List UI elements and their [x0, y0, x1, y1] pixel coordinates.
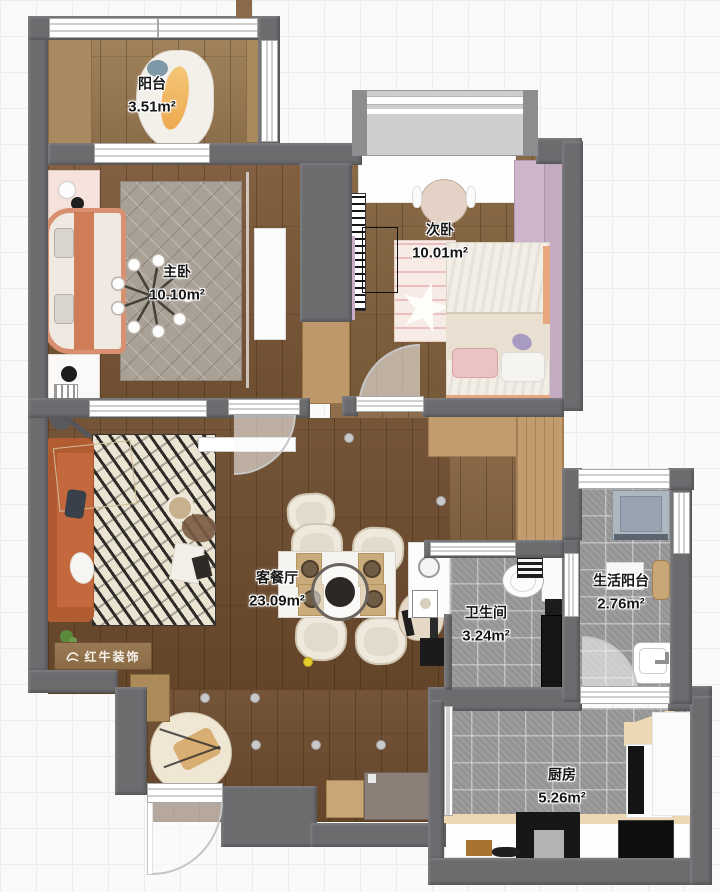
- wall: [422, 398, 564, 417]
- cutting-board: [466, 840, 492, 856]
- downlight: [436, 496, 446, 506]
- fridge[interactable]: [618, 820, 674, 860]
- room-label-balcony: 阳台 3.51m²: [128, 74, 176, 119]
- wall: [115, 687, 147, 795]
- soap-dish: [420, 598, 431, 609]
- bathroom-sliding-door[interactable]: [430, 542, 516, 556]
- wall: [690, 696, 712, 885]
- plate: [363, 560, 381, 578]
- master-door-frame[interactable]: [228, 399, 300, 415]
- room-label-bathroom: 卫生间 3.24m²: [462, 603, 510, 648]
- storage-cabinet[interactable]: [516, 411, 564, 543]
- washer-panel: [614, 534, 668, 540]
- wall: [221, 786, 317, 847]
- wall: [428, 700, 444, 860]
- room-area: 10.01m²: [412, 241, 468, 264]
- smoke-detector: [303, 657, 313, 667]
- wall: [562, 141, 583, 411]
- room-name: 厨房: [538, 765, 586, 787]
- room-label-kitchen: 厨房 5.26m²: [538, 765, 586, 810]
- pan: [492, 847, 520, 857]
- built-in-oven[interactable]: [628, 746, 644, 814]
- bed-pillow: [54, 294, 74, 324]
- room-name: 生活阳台: [593, 571, 649, 593]
- brand-watermark: 红牛装饰: [54, 642, 152, 670]
- wall: [310, 823, 446, 847]
- sink-faucet: [665, 652, 669, 664]
- downlight: [251, 740, 261, 750]
- downlight: [344, 433, 354, 443]
- entry-door-swing[interactable]: [152, 801, 223, 875]
- table-lamp: [58, 181, 76, 199]
- room-name: 主卧: [149, 262, 205, 284]
- room-label-master-bedroom: 主卧 10.10m²: [149, 262, 205, 307]
- floor-drain: [517, 555, 543, 578]
- chair-armrest: [466, 186, 476, 208]
- wall: [444, 614, 452, 690]
- kitchen-sliding-door[interactable]: [444, 706, 453, 816]
- room-label-second-bedroom: 次卧 10.01m²: [412, 220, 468, 265]
- tall-cabinet[interactable]: [652, 712, 692, 816]
- downlight: [250, 693, 260, 703]
- window[interactable]: [578, 469, 670, 489]
- wall: [28, 16, 48, 672]
- bay-window-side: [523, 90, 538, 156]
- wall: [300, 163, 352, 322]
- sofa-pillow: [64, 489, 87, 519]
- closet-edge: [246, 172, 249, 388]
- storage-cabinet[interactable]: [428, 411, 518, 457]
- room-name: 卫生间: [462, 603, 510, 625]
- desk-chair[interactable]: [420, 179, 468, 225]
- wall-stub: [236, 0, 252, 18]
- room-area: 2.76m²: [593, 592, 649, 615]
- ironing-board[interactable]: [652, 560, 670, 600]
- wall: [428, 858, 712, 885]
- brand-logo-text: 红牛装饰: [84, 648, 140, 665]
- bay-window-glass: [366, 96, 524, 105]
- sink: [418, 556, 440, 578]
- window[interactable]: [158, 18, 258, 38]
- wardrobe-purple[interactable]: [514, 160, 546, 246]
- second-bedroom-door-frame[interactable]: [356, 396, 424, 412]
- room-area: 23.09m²: [249, 589, 305, 612]
- bay-window-glass: [366, 109, 524, 114]
- bay-window-side: [352, 90, 367, 156]
- room-label-utility-balcony: 生活阳台 2.76m²: [593, 571, 649, 616]
- sofa-armrest: [44, 607, 94, 622]
- bathroom-cabinet[interactable]: [541, 615, 562, 688]
- stove-pad: [534, 830, 564, 860]
- lazy-susan: [325, 577, 355, 607]
- tv-cabinet[interactable]: [326, 780, 364, 818]
- brand-logo-icon: [65, 649, 80, 664]
- chair-armrest: [412, 186, 422, 208]
- window[interactable]: [580, 686, 670, 704]
- entry-door-frame[interactable]: [147, 783, 223, 803]
- room-area: 5.26m²: [538, 786, 586, 809]
- bed-runner: [74, 212, 94, 350]
- decor-tray: [61, 366, 77, 382]
- bed-pillow: [501, 352, 545, 382]
- toilet-tank: [541, 556, 563, 602]
- room-area: 3.24m²: [462, 624, 510, 647]
- window[interactable]: [89, 400, 207, 417]
- room-name: 次卧: [412, 220, 468, 242]
- window[interactable]: [49, 18, 158, 38]
- room-area: 10.10m²: [149, 283, 205, 306]
- room-label-living-dining: 客餐厅 23.09m²: [249, 568, 305, 613]
- balcony-cabinet[interactable]: [48, 36, 92, 145]
- bed-pillow: [452, 348, 498, 378]
- piano-bench[interactable]: [362, 227, 398, 293]
- bath-mat: [545, 599, 563, 616]
- downlight: [311, 740, 321, 750]
- downlight: [376, 740, 386, 750]
- room-area: 3.51m²: [128, 95, 176, 118]
- room-name: 阳台: [128, 74, 176, 96]
- wall: [28, 670, 118, 693]
- tv-bracket: [368, 774, 376, 783]
- washer-lid: [620, 496, 662, 532]
- room-name: 客餐厅: [249, 568, 305, 590]
- bed-frame-accent: [543, 246, 550, 324]
- window[interactable]: [673, 492, 690, 554]
- downlight: [200, 693, 210, 703]
- window[interactable]: [261, 40, 278, 142]
- window[interactable]: [564, 553, 579, 617]
- wall: [668, 468, 694, 490]
- window[interactable]: [94, 143, 210, 163]
- wardrobe[interactable]: [254, 228, 286, 340]
- bed-pillow: [54, 228, 74, 258]
- hall-cabinet[interactable]: [302, 320, 350, 404]
- floor-plan: 红牛装饰: [0, 0, 720, 892]
